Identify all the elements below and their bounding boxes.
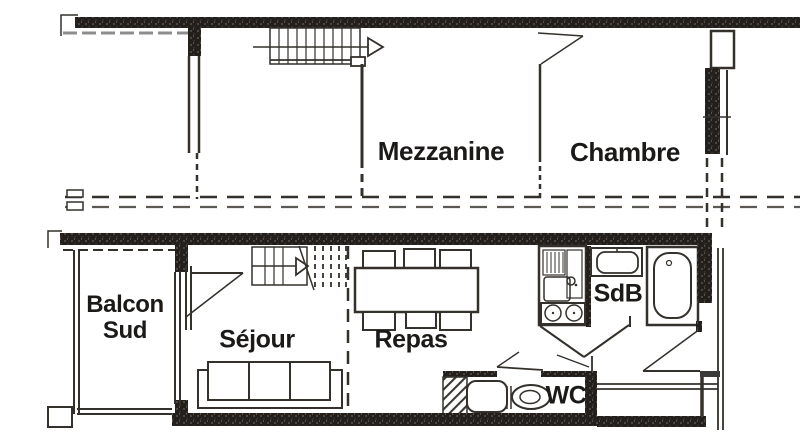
floor-plan-drawing: [0, 0, 800, 434]
upper-left-wall: [188, 22, 201, 56]
wc-top-wall-left: [443, 371, 497, 377]
lower-top-wall: [60, 233, 712, 245]
entry-bottom-wall: [597, 416, 706, 427]
staircase-lower: [252, 246, 346, 290]
toilet: [467, 381, 550, 412]
staircase-upper: [253, 28, 383, 66]
chambre-window: [711, 31, 734, 68]
room-label-sejour: Séjour: [219, 327, 294, 354]
washbasin: [591, 248, 642, 276]
kitchen-unit: [539, 246, 586, 325]
upper-right-wall: [705, 68, 720, 154]
entry-closet: [597, 377, 718, 416]
wc-duct-hatched: [443, 377, 467, 414]
chambre-door: [538, 33, 583, 64]
room-label-wc: WC: [546, 383, 587, 410]
balcon-label-line1: Balcon: [86, 291, 164, 318]
balcony-corner-post: [48, 407, 72, 427]
upper-top-wall: [75, 17, 800, 28]
stair-dashed-treads: [315, 246, 346, 288]
balcon-label-line2: Sud: [103, 317, 147, 344]
entry-wall-ledge: [700, 371, 720, 377]
bathtub: [647, 247, 698, 325]
entrance-door-pivot: [696, 321, 702, 332]
room-label-repas: Repas: [374, 327, 447, 354]
room-label-balcon-sud: Balcon Sud: [86, 292, 164, 344]
upper-right-dashed-edge: [707, 158, 722, 228]
wc-top-wall-right: [541, 371, 597, 377]
lower-top-wall-left-cap: [48, 231, 62, 248]
upper-left-window: [189, 56, 199, 199]
wc-right-wall: [585, 377, 597, 418]
sdb-right-wall: [697, 240, 712, 303]
lower-right-outer-edge: [718, 248, 723, 430]
sejour-door: [186, 273, 243, 317]
sofa: [198, 362, 342, 408]
stair-direction-arrow: [368, 38, 383, 56]
balcony-sliding-door: [175, 266, 191, 404]
upper-floor-edge-dashed: [65, 190, 800, 210]
upper-floor: [61, 15, 800, 228]
room-label-sdb: SdB: [594, 281, 643, 308]
dining-table: [355, 268, 478, 312]
wc-door-swing: [497, 352, 592, 372]
floor-plan: Mezzanine Chambre Balcon Sud Séjour Repa…: [0, 0, 800, 434]
dining-chairs-top: [363, 249, 471, 268]
room-label-chambre: Chambre: [570, 138, 680, 166]
entrance-door: [643, 321, 702, 371]
room-label-mezzanine: Mezzanine: [378, 137, 504, 165]
lower-bottom-wall: [172, 413, 597, 426]
